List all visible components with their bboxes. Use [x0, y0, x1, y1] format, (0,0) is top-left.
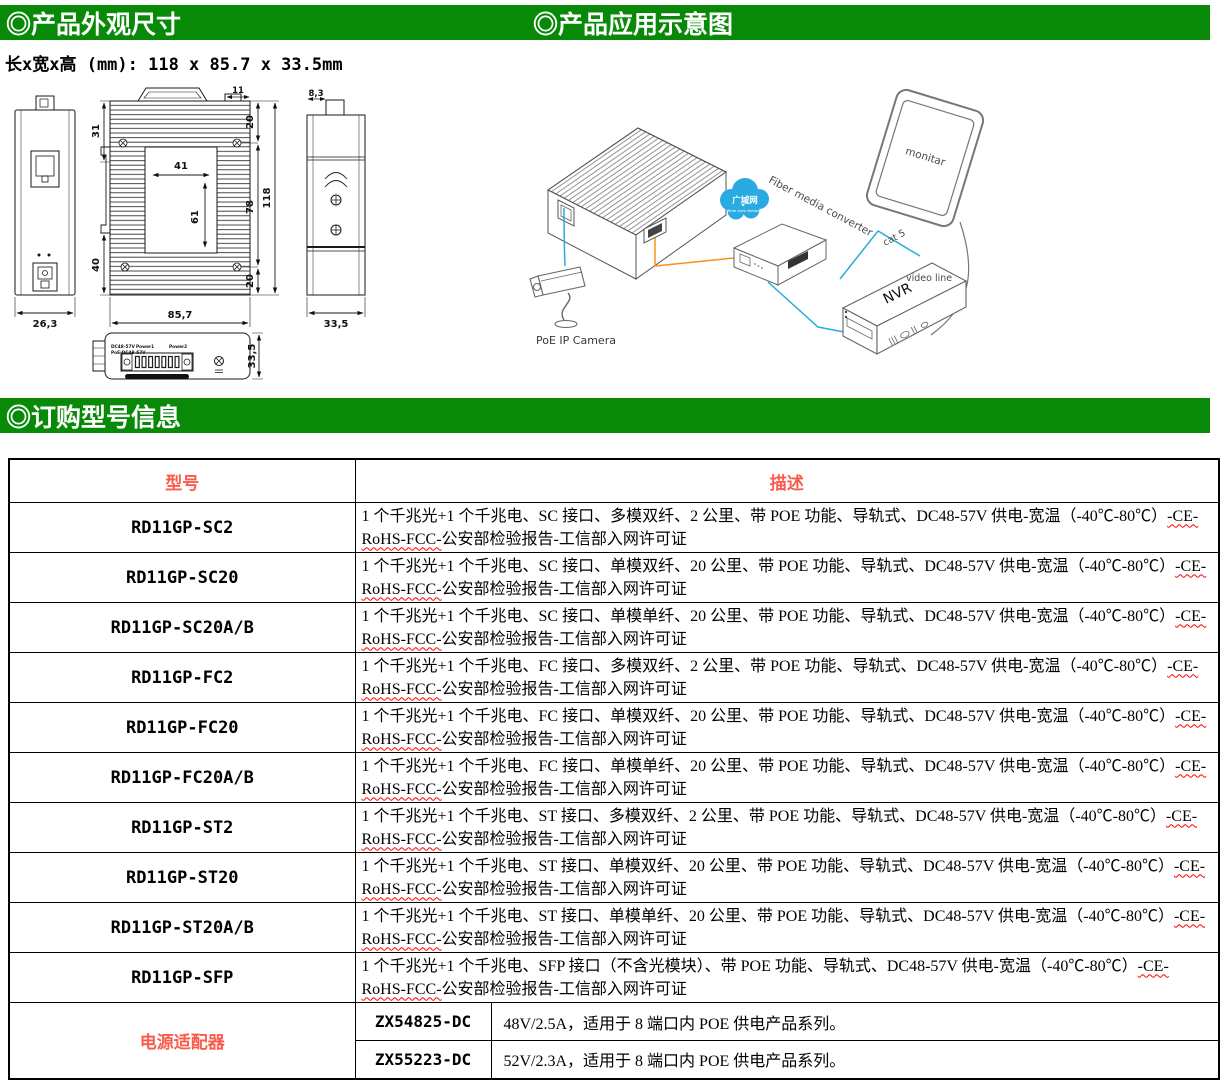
appearance-title: ◎产品外观尺寸 — [6, 5, 181, 41]
model-cell: RD11GP-ST2 — [9, 803, 355, 853]
model-cell: RD11GP-SC2 — [9, 503, 355, 553]
overall-dimensions-text: 长x宽x高 (mm): 118 x 85.7 x 33.5mm — [5, 50, 343, 75]
svg-text:61: 61 — [190, 210, 201, 224]
svg-text:11: 11 — [232, 86, 244, 96]
adapter-model-cell: ZX55223-DC — [355, 1041, 491, 1079]
adapter-description-cell: 52V/2.3A，适用于 8 端口内 POE 供电产品系列。 — [491, 1041, 1219, 1079]
description-cell: 1 个千兆光+1 个千兆电、FC 接口、单模单纤、20 公里、带 POE 功能、… — [355, 753, 1219, 803]
license-text: 公安部检验报告-工信部入网许可证 — [442, 531, 687, 548]
table-row: RD11GP-SC20A/B1 个千兆光+1 个千兆电、SC 接口、单模单纤、2… — [9, 603, 1219, 653]
poe-camera-illustration — [530, 267, 585, 328]
description-cell: 1 个千兆光+1 个千兆电、SC 接口、单模双纤、20 公里、带 POE 功能、… — [355, 553, 1219, 603]
svg-text:26,3: 26,3 — [33, 319, 58, 330]
svg-text:Power1: Power1 — [136, 344, 154, 350]
order-table-body: RD11GP-SC21 个千兆光+1 个千兆电、SC 接口、多模双纤、2 公里、… — [9, 503, 1219, 1079]
media-converter-illustration — [734, 224, 826, 285]
converter-nvr-line — [768, 282, 844, 332]
order-section-bar: ◎订购型号信息 — [0, 398, 1210, 433]
description-text: 1 个千兆光+1 个千兆电、ST 接口、单模单纤、20 公里、带 POE 功能、… — [362, 908, 1174, 925]
license-text: 公安部检验报告-工信部入网许可证 — [442, 931, 687, 948]
svg-text:118: 118 — [262, 188, 273, 209]
description-cell: 1 个千兆光+1 个千兆电、ST 接口、单模双纤、20 公里、带 POE 功能、… — [355, 853, 1219, 903]
order-title: ◎订购型号信息 — [6, 398, 181, 434]
adapter-description-cell: 48V/2.5A，适用于 8 端口内 POE 供电产品系列。 — [491, 1003, 1219, 1041]
model-cell: RD11GP-SC20 — [9, 553, 355, 603]
description-text: 1 个千兆光+1 个千兆电、FC 接口、单模双纤、20 公里、带 POE 功能、… — [362, 708, 1176, 725]
table-row: RD11GP-SC201 个千兆光+1 个千兆电、SC 接口、单模双纤、20 公… — [9, 553, 1219, 603]
description-cell: 1 个千兆光+1 个千兆电、SFP 接口（不含光模块）、带 POE 功能、导轨式… — [355, 953, 1219, 1003]
application-diagram: PoE IP Camera 广域网 Wide Area Network Fibe… — [488, 80, 1226, 392]
model-cell: RD11GP-ST20A/B — [9, 903, 355, 953]
description-text: 1 个千兆光+1 个千兆电、ST 接口、单模双纤、20 公里、带 POE 功能、… — [362, 858, 1174, 875]
column-header-model: 型号 — [9, 459, 355, 503]
model-cell: RD11GP-SC20A/B — [9, 603, 355, 653]
model-cell: RD11GP-FC20 — [9, 703, 355, 753]
description-text: 1 个千兆光+1 个千兆电、SC 接口、单模单纤、20 公里、带 POE 功能、… — [362, 608, 1176, 625]
svg-text:20: 20 — [245, 274, 256, 288]
front-view-drawing: 26,3 — [15, 96, 75, 330]
description-text: 1 个千兆光+1 个千兆电、ST 接口、多模双纤、2 公里、带 POE 功能、导… — [362, 808, 1166, 825]
description-text: 1 个千兆光+1 个千兆电、SC 接口、多模双纤、2 公里、带 POE 功能、导… — [362, 508, 1168, 525]
model-cell: RD11GP-FC20A/B — [9, 753, 355, 803]
license-text: 公安部检验报告-工信部入网许可证 — [442, 831, 687, 848]
license-text: 公安部检验报告-工信部入网许可证 — [442, 881, 687, 898]
description-cell: 1 个千兆光+1 个千兆电、FC 接口、单模双纤、20 公里、带 POE 功能、… — [355, 703, 1219, 753]
svg-text:33,5: 33,5 — [247, 344, 258, 369]
svg-text:20: 20 — [245, 115, 256, 129]
table-row: RD11GP-SC21 个千兆光+1 个千兆电、SC 接口、多模双纤、2 公里、… — [9, 503, 1219, 553]
cloud-sublabel: Wide Area Network — [727, 208, 764, 213]
table-row: RD11GP-FC20A/B1 个千兆光+1 个千兆电、FC 接口、单模单纤、2… — [9, 753, 1219, 803]
svg-text:78: 78 — [245, 200, 256, 214]
model-cell: RD11GP-ST20 — [9, 853, 355, 903]
svg-text:40: 40 — [91, 258, 102, 272]
side-view-drawing: 8,3 33,5 — [307, 89, 365, 330]
table-header-row: 型号 描述 — [9, 459, 1219, 503]
description-cell: 1 个千兆光+1 个千兆电、FC 接口、多模双纤、2 公里、带 POE 功能、导… — [355, 653, 1219, 703]
svg-text:85,7: 85,7 — [168, 310, 193, 321]
description-cell: 1 个千兆光+1 个千兆电、ST 接口、单模单纤、20 公里、带 POE 功能、… — [355, 903, 1219, 953]
monitor-illustration: monitar — [864, 87, 985, 228]
model-cell: RD11GP-FC2 — [9, 653, 355, 703]
rear-view-drawing: 41 61 31 40 11 20 78 20 118 85,7 — [91, 86, 279, 327]
description-text: 1 个千兆光+1 个千兆电、SFP 接口（不含光模块）、带 POE 功能、导轨式… — [362, 958, 1138, 975]
cat5-line — [840, 231, 920, 279]
license-text: 公安部检验报告-工信部入网许可证 — [442, 681, 687, 698]
order-model-table: 型号 描述 RD11GP-SC21 个千兆光+1 个千兆电、SC 接口、多模双纤… — [8, 458, 1220, 1080]
svg-text:31: 31 — [91, 124, 102, 138]
model-cell: RD11GP-SFP — [9, 953, 355, 1003]
industrial-switch-illustration — [548, 128, 726, 279]
cloud-label: 广域网 — [732, 195, 758, 206]
svg-text:Power2: Power2 — [169, 344, 187, 350]
svg-text:DC48-57V: DC48-57V — [111, 344, 135, 350]
table-row: RD11GP-FC21 个千兆光+1 个千兆电、FC 接口、多模双纤、2 公里、… — [9, 653, 1219, 703]
top-view-drawing: DC48-57V PoE:DC48-57V Power1 Power2 33,5 — [93, 333, 263, 379]
adapter-label-cell: 电源适配器 — [9, 1003, 355, 1079]
table-row: RD11GP-SFP1 个千兆光+1 个千兆电、SFP 接口（不含光模块）、带 … — [9, 953, 1219, 1003]
video-line-label: video line — [906, 273, 952, 284]
svg-text:8,3: 8,3 — [308, 89, 323, 99]
section-header-bar: ◎产品外观尺寸 ◎产品应用示意图 — [0, 5, 1210, 40]
description-text: 1 个千兆光+1 个千兆电、SC 接口、单模双纤、20 公里、带 POE 功能、… — [362, 558, 1176, 575]
license-text: 公安部检验报告-工信部入网许可证 — [442, 581, 687, 598]
column-header-description: 描述 — [355, 459, 1219, 503]
svg-text:33,5: 33,5 — [324, 319, 349, 330]
license-text: 公安部检验报告-工信部入网许可证 — [442, 781, 687, 798]
license-text: 公安部检验报告-工信部入网许可证 — [442, 631, 687, 648]
adapter-model-cell: ZX54825-DC — [355, 1003, 491, 1041]
application-title: ◎产品应用示意图 — [533, 5, 733, 41]
description-cell: 1 个千兆光+1 个千兆电、SC 接口、多模双纤、2 公里、带 POE 功能、导… — [355, 503, 1219, 553]
description-text: 1 个千兆光+1 个千兆电、FC 接口、多模双纤、2 公里、带 POE 功能、导… — [362, 658, 1168, 675]
table-row: RD11GP-FC201 个千兆光+1 个千兆电、FC 接口、单模双纤、20 公… — [9, 703, 1219, 753]
description-cell: 1 个千兆光+1 个千兆电、SC 接口、单模单纤、20 公里、带 POE 功能、… — [355, 603, 1219, 653]
camera-label: PoE IP Camera — [536, 334, 616, 347]
description-text: 1 个千兆光+1 个千兆电、FC 接口、单模单纤、20 公里、带 POE 功能、… — [362, 758, 1176, 775]
adapter-row: 电源适配器ZX54825-DC48V/2.5A，适用于 8 端口内 POE 供电… — [9, 1003, 1219, 1041]
description-cell: 1 个千兆光+1 个千兆电、ST 接口、多模双纤、2 公里、带 POE 功能、导… — [355, 803, 1219, 853]
dimension-drawings: 26,3 41 61 31 40 11 20 — [5, 85, 483, 397]
svg-text:41: 41 — [174, 161, 188, 172]
table-row: RD11GP-ST201 个千兆光+1 个千兆电、ST 接口、单模双纤、20 公… — [9, 853, 1219, 903]
license-text: 公安部检验报告-工信部入网许可证 — [442, 981, 687, 998]
license-text: 公安部检验报告-工信部入网许可证 — [442, 731, 687, 748]
table-row: RD11GP-ST20A/B1 个千兆光+1 个千兆电、ST 接口、单模单纤、2… — [9, 903, 1219, 953]
table-row: RD11GP-ST21 个千兆光+1 个千兆电、ST 接口、多模双纤、2 公里、… — [9, 803, 1219, 853]
